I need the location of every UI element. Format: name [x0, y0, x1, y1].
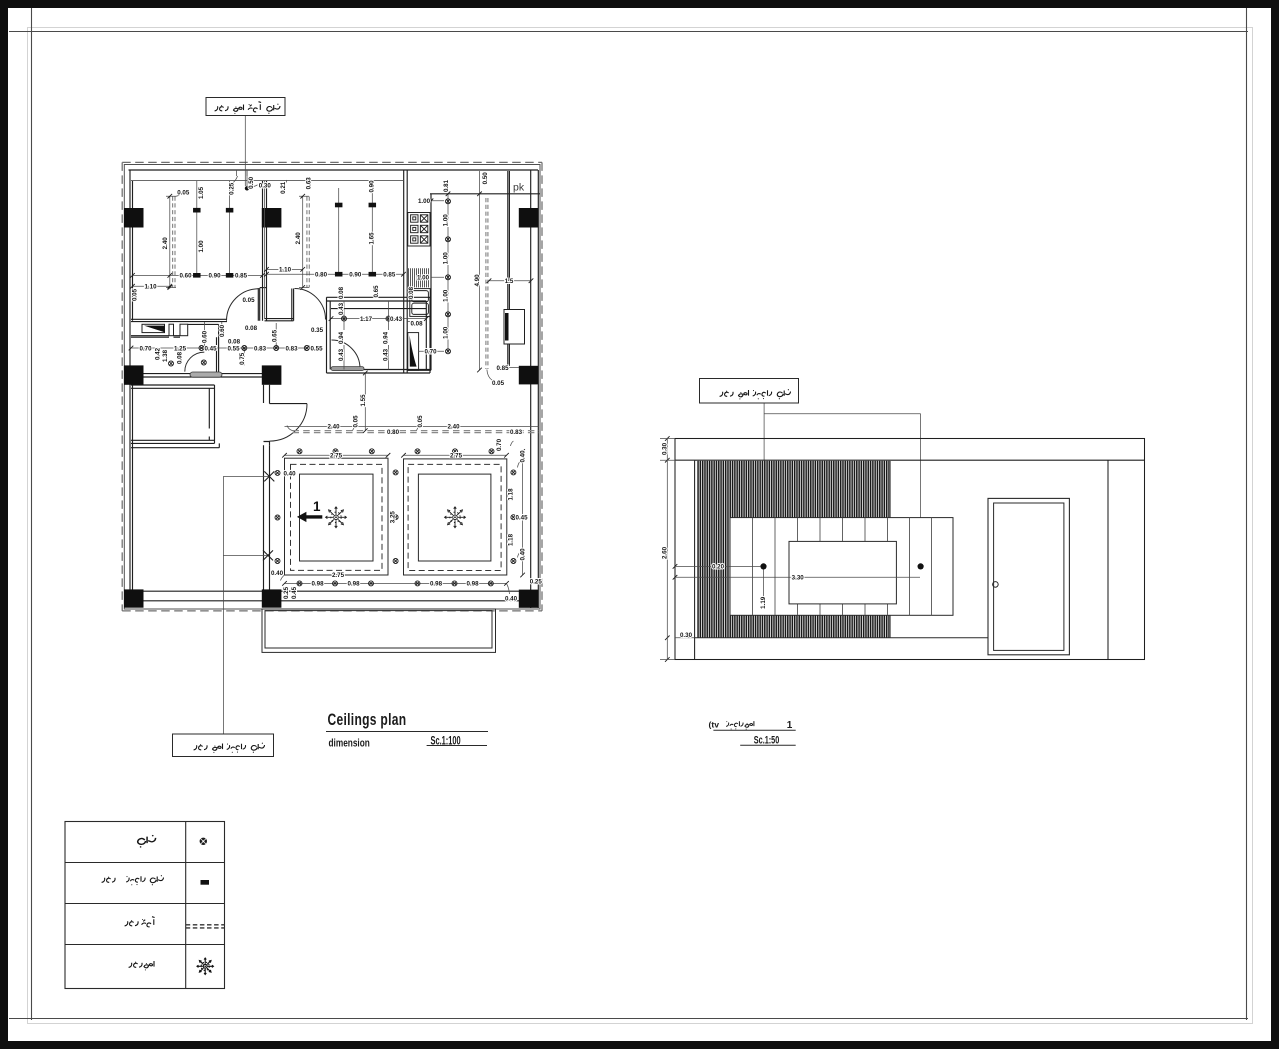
svg-text:0.60: 0.60 — [179, 273, 192, 280]
svg-text:Sc.1:100: Sc.1:100 — [431, 735, 462, 748]
svg-text:0.25: 0.25 — [229, 182, 236, 195]
svg-text:0.43: 0.43 — [390, 316, 403, 323]
svg-text:0.40: 0.40 — [505, 596, 518, 603]
svg-text:0.08: 0.08 — [177, 351, 184, 364]
svg-text:0.98: 0.98 — [430, 581, 443, 588]
svg-text:2.75: 2.75 — [330, 453, 343, 460]
svg-text:0.05: 0.05 — [242, 297, 255, 304]
svg-text:1: 1 — [787, 720, 793, 731]
svg-text:0.83: 0.83 — [254, 345, 267, 352]
svg-text:0.05: 0.05 — [177, 190, 190, 197]
svg-text:1.00: 1.00 — [417, 275, 430, 282]
svg-text:0.20: 0.20 — [712, 564, 725, 571]
svg-text:0.30: 0.30 — [680, 632, 693, 639]
svg-text:2.40: 2.40 — [162, 237, 169, 250]
svg-text:0.63: 0.63 — [305, 177, 312, 190]
svg-text:1.05: 1.05 — [198, 186, 205, 199]
svg-text:0.05: 0.05 — [492, 380, 505, 387]
svg-text:0.90: 0.90 — [349, 272, 362, 279]
svg-text:0.60: 0.60 — [219, 324, 226, 337]
svg-text:1.17: 1.17 — [360, 316, 373, 323]
svg-text:0.05: 0.05 — [353, 415, 360, 428]
svg-text:0.80: 0.80 — [387, 429, 400, 436]
svg-text:0.50: 0.50 — [248, 176, 255, 189]
svg-text:0.90: 0.90 — [368, 180, 375, 193]
svg-text:0.40: 0.40 — [271, 570, 284, 577]
svg-text:3.25: 3.25 — [390, 511, 397, 524]
svg-text:0.60: 0.60 — [202, 330, 209, 343]
svg-text:0.85: 0.85 — [383, 272, 396, 279]
svg-text:0.98: 0.98 — [466, 581, 479, 588]
svg-text:2.75: 2.75 — [332, 572, 345, 579]
svg-text:0.81: 0.81 — [443, 179, 450, 192]
svg-text:0.94: 0.94 — [338, 331, 345, 344]
svg-text:0.83: 0.83 — [285, 345, 298, 352]
svg-text:2.40: 2.40 — [327, 424, 340, 431]
svg-text:0.43: 0.43 — [338, 302, 345, 315]
svg-text:1.18: 1.18 — [508, 533, 515, 546]
svg-text:2.40: 2.40 — [295, 232, 302, 245]
svg-text:3.30: 3.30 — [792, 575, 805, 582]
svg-text:dimension: dimension — [329, 737, 370, 749]
svg-text:4.90: 4.90 — [474, 274, 481, 287]
svg-text:0.55: 0.55 — [227, 345, 240, 352]
svg-text:0.45: 0.45 — [204, 345, 217, 352]
svg-text:0.45: 0.45 — [291, 586, 298, 599]
svg-text:1.5: 1.5 — [505, 278, 514, 285]
svg-text:0.08: 0.08 — [228, 339, 241, 346]
svg-text:1.00: 1.00 — [443, 214, 450, 227]
svg-text:0.25: 0.25 — [530, 579, 543, 586]
svg-text:0.45: 0.45 — [515, 515, 528, 522]
svg-text:0.08: 0.08 — [410, 320, 423, 327]
svg-text:0.08: 0.08 — [245, 325, 258, 332]
svg-text:0.94: 0.94 — [383, 331, 390, 344]
svg-text:1.10: 1.10 — [279, 267, 292, 274]
svg-text:0.08: 0.08 — [338, 286, 345, 299]
svg-text:0.55: 0.55 — [310, 345, 323, 352]
svg-text:0.83: 0.83 — [510, 429, 523, 436]
svg-text:0.30: 0.30 — [259, 183, 272, 190]
svg-text:0.75: 0.75 — [239, 352, 246, 365]
svg-text:1.00: 1.00 — [443, 289, 450, 302]
svg-text:0.40: 0.40 — [520, 548, 527, 561]
svg-text:0.05: 0.05 — [131, 288, 138, 301]
svg-text:1.00: 1.00 — [443, 326, 450, 339]
svg-text:0.85: 0.85 — [235, 273, 248, 280]
svg-text:1.19: 1.19 — [760, 596, 767, 609]
svg-text:0.98: 0.98 — [311, 581, 324, 588]
svg-text:0.70: 0.70 — [496, 438, 503, 451]
svg-text:0.43: 0.43 — [383, 348, 390, 361]
svg-text:0.85: 0.85 — [496, 365, 509, 372]
svg-text:1.65: 1.65 — [368, 232, 375, 245]
svg-text:0.40: 0.40 — [520, 450, 527, 463]
svg-text:0.50: 0.50 — [482, 172, 489, 185]
svg-text:1.00: 1.00 — [198, 240, 205, 253]
svg-text:0.43: 0.43 — [338, 348, 345, 361]
svg-text:0.05: 0.05 — [417, 415, 424, 428]
svg-text:1.38: 1.38 — [162, 349, 169, 362]
svg-text:2.75: 2.75 — [450, 453, 463, 460]
svg-text:0.21: 0.21 — [280, 181, 287, 194]
svg-text:0.08: 0.08 — [408, 286, 415, 299]
svg-text:0.35: 0.35 — [311, 327, 324, 334]
svg-text:0.80: 0.80 — [315, 272, 328, 279]
svg-text:0.65: 0.65 — [373, 285, 380, 298]
svg-text:0.30: 0.30 — [662, 442, 669, 455]
svg-text:2.60: 2.60 — [662, 546, 669, 559]
svg-text:1.00: 1.00 — [443, 252, 450, 265]
svg-text:Ceilings plan: Ceilings plan — [328, 712, 407, 730]
svg-text:0.98: 0.98 — [347, 581, 360, 588]
svg-text:0.90: 0.90 — [208, 273, 221, 280]
svg-text:1.00: 1.00 — [418, 198, 431, 205]
svg-text:0.42: 0.42 — [154, 347, 161, 360]
svg-text:1.55: 1.55 — [360, 394, 367, 407]
svg-text:0.70: 0.70 — [139, 345, 152, 352]
svg-text:(tv: (tv — [709, 720, 720, 730]
svg-text:0.65: 0.65 — [272, 329, 279, 342]
svg-text:pk: pk — [513, 182, 525, 194]
svg-text:2.40: 2.40 — [447, 424, 460, 431]
svg-text:0.25: 0.25 — [283, 586, 290, 599]
svg-text:1.25: 1.25 — [174, 345, 187, 352]
svg-text:0.70: 0.70 — [424, 349, 437, 356]
svg-text:1.18: 1.18 — [508, 488, 515, 501]
svg-text:1.10: 1.10 — [144, 283, 157, 290]
svg-text:1: 1 — [313, 499, 321, 514]
svg-text:0.40: 0.40 — [283, 471, 296, 478]
